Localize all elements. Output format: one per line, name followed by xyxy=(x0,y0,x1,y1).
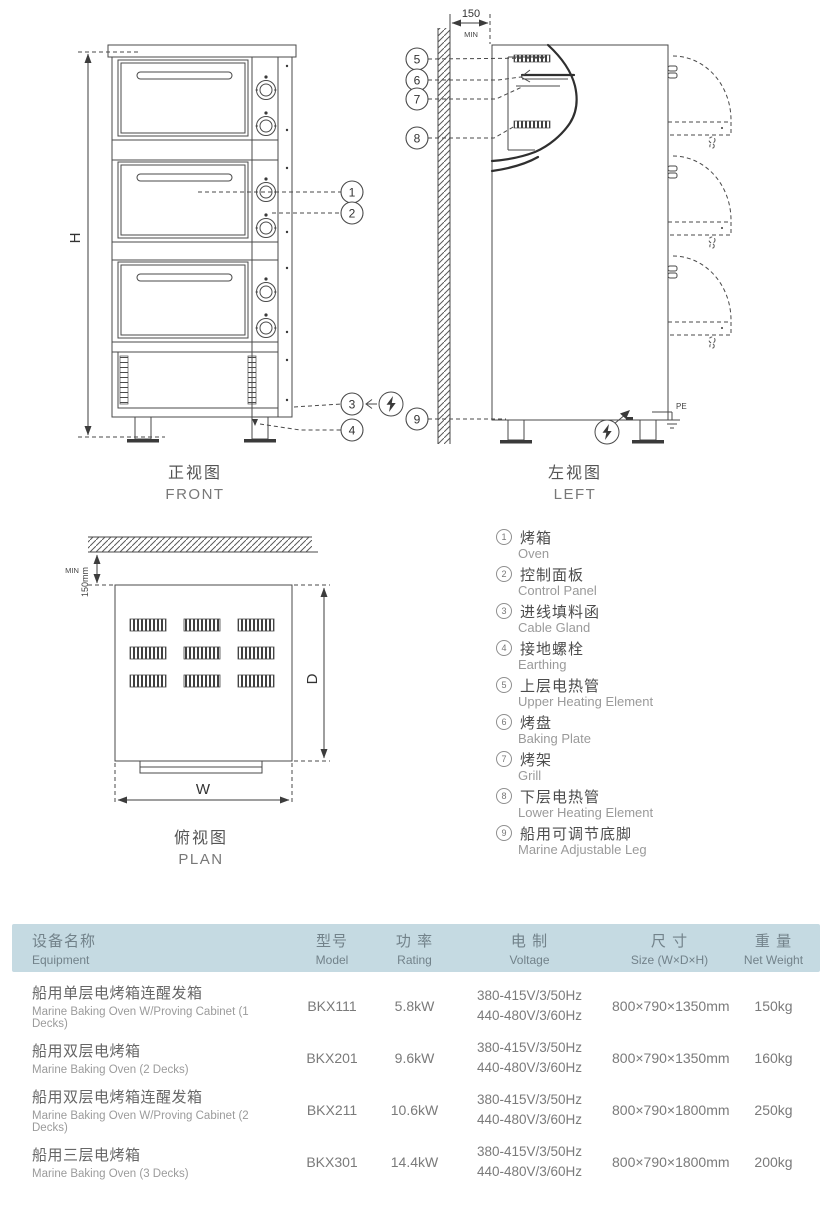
callout-8: 8 xyxy=(406,126,515,149)
legend-num-icon: 4 xyxy=(496,640,512,656)
door-swing-2 xyxy=(668,156,731,248)
svg-text:1: 1 xyxy=(349,186,356,200)
svg-text:4: 4 xyxy=(349,424,356,438)
legend-item-7: 7烤架 Grill xyxy=(496,750,826,783)
legend-item-6: 6烤盘 Baking Plate xyxy=(496,713,826,746)
spec-table-header: 设备名称 Equipment 型号 Model 功 率 Rating 电 制 V… xyxy=(12,924,820,972)
legend-item-8: 8下层电热管 Lower Heating Element xyxy=(496,787,826,820)
legend-num-icon: 9 xyxy=(496,825,512,841)
callout-6: 6 xyxy=(406,69,521,91)
svg-text:3: 3 xyxy=(349,398,356,412)
legend: 1烤箱 Oven 2控制面板 Control Panel 3进线填料函 Cabl… xyxy=(496,528,826,861)
product-name-cn: 船用三层电烤箱 xyxy=(32,1144,282,1165)
svg-text:150: 150 xyxy=(462,8,480,20)
rating-value: 5.8kW xyxy=(382,998,447,1014)
oven-deck-2 xyxy=(118,162,288,238)
plan-title-en: PLAN xyxy=(178,851,223,868)
legend-en: Oven xyxy=(518,546,826,561)
oven-datasheet-page: H xyxy=(0,0,830,1215)
legend-cn: 接地螺栓 xyxy=(520,638,584,659)
depth-dimension: D xyxy=(294,585,330,761)
legend-cn: 下层电热管 xyxy=(520,786,600,807)
width-dimension: W xyxy=(115,763,292,804)
svg-text:D: D xyxy=(304,673,321,684)
size-value: 800×790×1350mm xyxy=(612,1050,727,1066)
callout-3: 3 xyxy=(294,393,377,415)
legend-num-icon: 5 xyxy=(496,677,512,693)
legend-en: Marine Adjustable Leg xyxy=(518,842,826,857)
baking-plate xyxy=(521,70,574,82)
product-name-en: Marine Baking Oven W/Proving Cabinet (1 … xyxy=(32,1006,282,1030)
svg-text:9: 9 xyxy=(414,413,421,427)
left-view-legs xyxy=(500,420,664,444)
callout-4: 4 xyxy=(260,419,363,441)
table-row: 船用三层电烤箱 Marine Baking Oven (3 Decks) BKX… xyxy=(12,1136,820,1188)
door-swing-3 xyxy=(668,256,731,348)
voltage-value: 380-415V/3/50Hz 440-480V/3/60Hz xyxy=(447,1142,612,1182)
legend-cn: 船用可调节底脚 xyxy=(520,823,632,844)
svg-text:MIN: MIN xyxy=(65,566,79,575)
plan-door-handle xyxy=(140,761,262,773)
power-symbol-left xyxy=(595,410,633,444)
legend-cn: 进线填料函 xyxy=(520,601,600,622)
rating-value: 14.4kW xyxy=(382,1154,447,1170)
model-value: BKX201 xyxy=(282,1050,382,1066)
legend-en: Cable Gland xyxy=(518,620,826,635)
plan-body xyxy=(115,585,292,761)
wall-plan-view xyxy=(88,537,318,552)
product-name-cn: 船用单层电烤箱连醒发箱 xyxy=(32,982,282,1003)
svg-text:8: 8 xyxy=(414,132,421,146)
plan-view: 150mm MIN D xyxy=(65,537,330,868)
size-value: 800×790×1350mm xyxy=(612,998,727,1014)
header-model: 型号 Model xyxy=(282,930,382,967)
legend-num-icon: 8 xyxy=(496,788,512,804)
front-title-cn: 正视图 xyxy=(168,464,222,482)
legend-item-1: 1烤箱 Oven xyxy=(496,528,826,561)
weight-value: 250kg xyxy=(727,1102,820,1118)
front-top-cap xyxy=(108,45,296,57)
plan-title-cn: 俯视图 xyxy=(174,829,228,847)
product-name-en: Marine Baking Oven (3 Decks) xyxy=(32,1168,282,1180)
callout-2: 2 xyxy=(272,202,363,224)
product-name-cn: 船用双层电烤箱连醒发箱 xyxy=(32,1086,282,1107)
wall-left-view xyxy=(438,14,450,444)
table-row: 船用单层电烤箱连醒发箱 Marine Baking Oven W/Proving… xyxy=(12,980,820,1032)
legend-cn: 烤箱 xyxy=(520,527,552,548)
product-name-en: Marine Baking Oven (2 Decks) xyxy=(32,1064,282,1076)
height-label: H xyxy=(67,233,84,244)
vent-slots xyxy=(130,619,274,687)
left-title-en: LEFT xyxy=(554,486,597,503)
legend-num-icon: 3 xyxy=(496,603,512,619)
size-value: 800×790×1800mm xyxy=(612,1154,727,1170)
legend-num-icon: 7 xyxy=(496,751,512,767)
model-value: BKX301 xyxy=(282,1154,382,1170)
header-rating: 功 率 Rating xyxy=(382,930,447,967)
table-row: 船用双层电烤箱 Marine Baking Oven (2 Decks) BKX… xyxy=(12,1032,820,1084)
weight-value: 160kg xyxy=(727,1050,820,1066)
size-value: 800×790×1800mm xyxy=(612,1102,727,1118)
pe-label: PE xyxy=(676,402,687,411)
legend-en: Upper Heating Element xyxy=(518,694,826,709)
legend-item-9: 9船用可调节底脚 Marine Adjustable Leg xyxy=(496,824,826,857)
legend-item-2: 2控制面板 Control Panel xyxy=(496,565,826,598)
cable-gland-mark xyxy=(252,419,258,426)
callout-7: 7 xyxy=(406,87,522,110)
legend-num-icon: 1 xyxy=(496,529,512,545)
product-name-en: Marine Baking Oven W/Proving Cabinet (2 … xyxy=(32,1110,282,1134)
weight-value: 150kg xyxy=(727,998,820,1014)
rating-value: 9.6kW xyxy=(382,1050,447,1066)
proving-compartment xyxy=(118,352,288,408)
weight-value: 200kg xyxy=(727,1154,820,1170)
legend-item-5: 5上层电热管 Upper Heating Element xyxy=(496,676,826,709)
voltage-value: 380-415V/3/50Hz 440-480V/3/60Hz xyxy=(447,1090,612,1130)
front-title-en: FRONT xyxy=(165,486,224,503)
left-clearance-dimension: 150 MIN xyxy=(452,8,490,44)
lower-heating-element xyxy=(514,121,550,128)
svg-text:MIN: MIN xyxy=(464,30,478,39)
legend-cn: 上层电热管 xyxy=(520,675,600,696)
product-name-cn: 船用双层电烤箱 xyxy=(32,1040,282,1061)
legend-num-icon: 6 xyxy=(496,714,512,730)
model-value: BKX211 xyxy=(282,1102,382,1118)
left-view: 150 MIN xyxy=(406,8,731,503)
legend-en: Earthing xyxy=(518,657,826,672)
legend-cn: 烤盘 xyxy=(520,712,552,733)
plan-clearance-dimension: 150mm MIN xyxy=(65,555,115,597)
svg-text:2: 2 xyxy=(349,207,356,221)
oven-deck-1 xyxy=(118,60,288,136)
front-view: H xyxy=(67,45,403,503)
svg-text:6: 6 xyxy=(414,74,421,88)
svg-text:5: 5 xyxy=(414,53,421,67)
legend-cn: 烤架 xyxy=(520,749,552,770)
callout-9: 9 xyxy=(406,408,506,430)
left-body xyxy=(492,45,668,420)
legend-num-icon: 2 xyxy=(496,566,512,582)
door-swing-1 xyxy=(668,56,731,148)
svg-text:W: W xyxy=(196,781,211,798)
voltage-value: 380-415V/3/50Hz 440-480V/3/60Hz xyxy=(447,1038,612,1078)
legend-cn: 控制面板 xyxy=(520,564,584,585)
spec-table: 设备名称 Equipment 型号 Model 功 率 Rating 电 制 V… xyxy=(12,924,820,1188)
legend-en: Baking Plate xyxy=(518,731,826,746)
header-size: 尺 寸 Size (W×D×H) xyxy=(612,930,727,967)
cutaway-detail xyxy=(492,45,577,171)
legend-en: Control Panel xyxy=(518,583,826,598)
front-height-dimension: H xyxy=(67,52,165,437)
voltage-value: 380-415V/3/50Hz 440-480V/3/60Hz xyxy=(447,986,612,1026)
spec-table-rows: 船用单层电烤箱连醒发箱 Marine Baking Oven W/Proving… xyxy=(12,980,820,1188)
table-row: 船用双层电烤箱连醒发箱 Marine Baking Oven W/Proving… xyxy=(12,1084,820,1136)
header-equipment: 设备名称 Equipment xyxy=(12,930,282,967)
svg-text:150mm: 150mm xyxy=(80,567,90,597)
rating-value: 10.6kW xyxy=(382,1102,447,1118)
legend-item-3: 3进线填料函 Cable Gland xyxy=(496,602,826,635)
power-symbol-front xyxy=(379,392,403,416)
header-net-weight: 重 量 Net Weight xyxy=(727,930,820,967)
legend-en: Grill xyxy=(518,768,826,783)
earthing-symbol: PE xyxy=(652,402,687,428)
oven-deck-3 xyxy=(118,262,288,338)
legend-item-4: 4接地螺栓 Earthing xyxy=(496,639,826,672)
legend-en: Lower Heating Element xyxy=(518,805,826,820)
left-title-cn: 左视图 xyxy=(548,464,602,482)
model-value: BKX111 xyxy=(282,998,382,1014)
front-legs xyxy=(127,417,276,443)
callout-1: 1 xyxy=(198,181,363,203)
svg-text:7: 7 xyxy=(414,93,421,107)
header-voltage: 电 制 Voltage xyxy=(447,930,612,967)
